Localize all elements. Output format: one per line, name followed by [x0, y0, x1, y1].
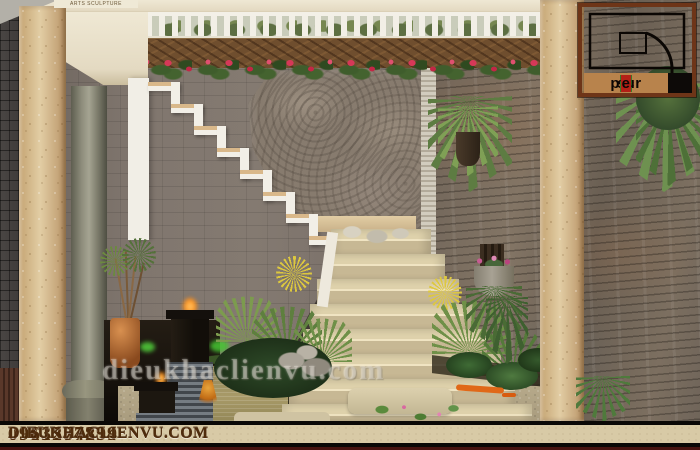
stepping-slab [234, 412, 330, 421]
left-pillar [19, 6, 66, 421]
render-image: scupture ARTS SCULPTURE dieukhaclienvu.c… [0, 0, 700, 450]
column [71, 86, 107, 386]
watermark-text: dieukhaclienvu.com [102, 354, 385, 387]
footer-bar: 0913574894 DIEUKHACLIENVU.COM 0961287239… [0, 425, 700, 443]
logo-wordmark: scupture [584, 73, 668, 93]
wood-slats [0, 368, 20, 421]
logo-arc-foot [668, 73, 692, 93]
sculpture-logo: scupture [578, 3, 696, 97]
green-light [140, 342, 155, 352]
logo-text-4: e [621, 75, 632, 92]
contact-footer: 0913574894 DIEUKHACLIENVU.COM 0961287239… [0, 421, 700, 450]
white-balustrade [94, 12, 548, 40]
fountain-cube [139, 391, 175, 413]
fountain-base [136, 413, 178, 421]
koi-fish [502, 393, 516, 397]
lower-step [324, 254, 445, 281]
dracaena-leaves [122, 238, 156, 272]
yellow-flower [276, 256, 312, 292]
website-text-2: DIEUKHACLIENVU.COM [8, 425, 209, 443]
arts-sculpture-label: ARTS SCULPTURE [54, 0, 138, 8]
plant-pot [456, 132, 480, 166]
fountain-cap [166, 310, 214, 319]
stair-head-post [128, 78, 149, 240]
flower-row [98, 56, 546, 82]
pebble-pile [338, 220, 416, 250]
